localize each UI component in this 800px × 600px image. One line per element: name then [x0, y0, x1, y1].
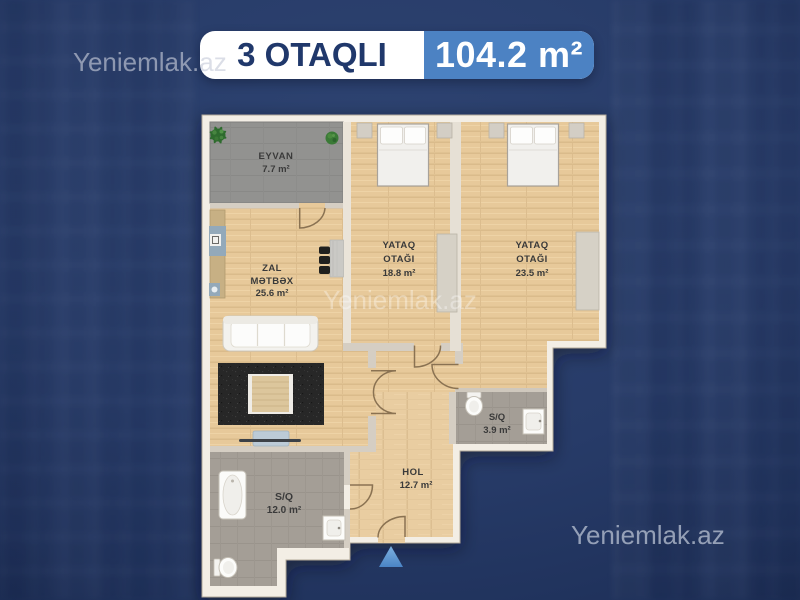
svg-text:MƏTBƏX: MƏTBƏX [250, 276, 293, 287]
svg-text:EYVAN: EYVAN [258, 151, 293, 162]
svg-text:23.5 m²: 23.5 m² [516, 268, 549, 279]
svg-text:ZAL: ZAL [262, 263, 282, 274]
svg-text:OTAĞI: OTAĞI [383, 253, 414, 265]
svg-text:OTAĞI: OTAĞI [516, 253, 547, 265]
svg-text:12.7 m²: 12.7 m² [400, 480, 433, 491]
svg-text:S/Q: S/Q [275, 491, 293, 503]
svg-text:HOL: HOL [402, 467, 424, 478]
svg-text:YATAQ: YATAQ [516, 240, 549, 251]
svg-text:7.7 m²: 7.7 m² [262, 164, 289, 175]
svg-text:YATAQ: YATAQ [383, 240, 416, 251]
svg-text:S/Q: S/Q [489, 412, 505, 423]
svg-text:12.0 m²: 12.0 m² [267, 505, 302, 516]
svg-text:Yeniemlak.az: Yeniemlak.az [323, 285, 477, 315]
svg-text:3.9 m²: 3.9 m² [483, 425, 510, 436]
svg-text:25.6 m²: 25.6 m² [256, 288, 289, 299]
svg-text:18.8 m²: 18.8 m² [383, 268, 416, 279]
